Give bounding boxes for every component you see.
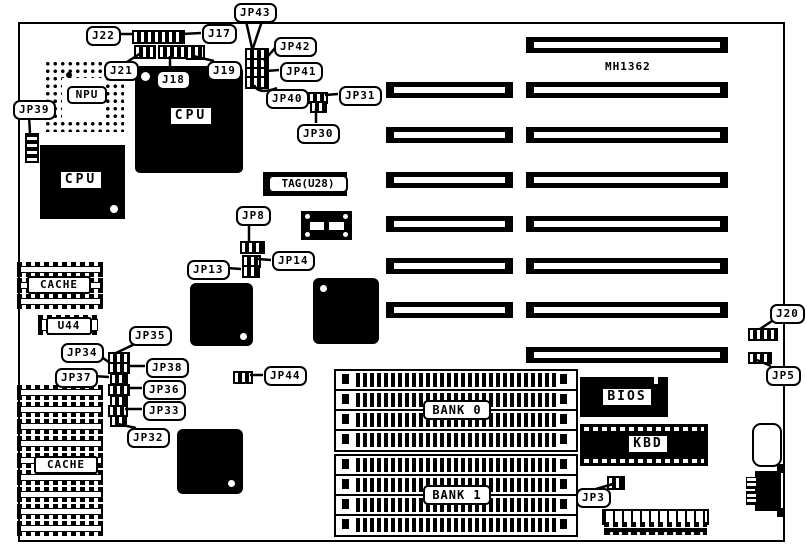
callout-jp3: JP3 [576, 488, 611, 508]
callout-jp32: JP32 [127, 428, 170, 448]
callout-j21: J21 [104, 61, 139, 81]
callout-jp40: JP40 [266, 89, 309, 109]
leader-lines [0, 0, 806, 548]
callout-j20: J20 [770, 304, 805, 324]
callout-jp39: JP39 [13, 100, 56, 120]
callout-jp36: JP36 [143, 380, 186, 400]
callout-j22: J22 [86, 26, 121, 46]
callout-jp5: JP5 [766, 366, 801, 386]
callout-jp43: JP43 [234, 3, 277, 23]
callout-jp34: JP34 [61, 343, 104, 363]
callout-jp31: JP31 [339, 86, 382, 106]
callout-jp41: JP41 [280, 62, 323, 82]
callout-jp44: JP44 [264, 366, 307, 386]
callout-j17: J17 [202, 24, 237, 44]
callout-jp37: JP37 [55, 368, 98, 388]
callout-jp35: JP35 [129, 326, 172, 346]
callout-jp8: JP8 [236, 206, 271, 226]
callout-jp14: JP14 [272, 251, 315, 271]
callout-j18: J18 [156, 70, 191, 90]
callout-jp38: JP38 [146, 358, 189, 378]
callout-j19: J19 [207, 61, 242, 81]
callout-jp30: JP30 [297, 124, 340, 144]
callout-jp13: JP13 [187, 260, 230, 280]
callout-jp33: JP33 [143, 401, 186, 421]
callout-jp42: JP42 [274, 37, 317, 57]
motherboard-diagram: MH1362 NPU CPU CPU TAG(U28) [0, 0, 806, 548]
